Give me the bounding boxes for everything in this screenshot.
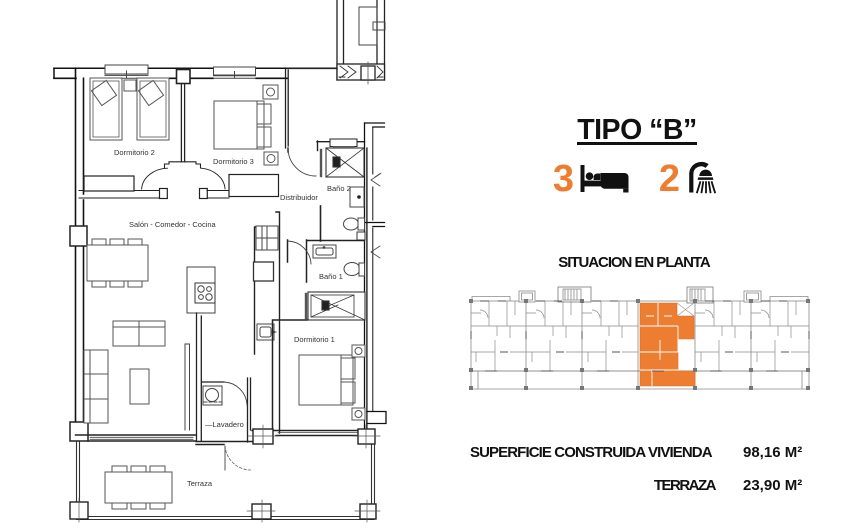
- svg-text:2: 2: [659, 158, 680, 200]
- svg-text:Baño 2: Baño 2: [327, 184, 351, 193]
- svg-text:Distribuidor: Distribuidor: [280, 193, 318, 202]
- svg-text:—Lavadero: —Lavadero: [205, 420, 244, 429]
- svg-text:SUPERFICIE CONSTRUIDA VIVIENDA: SUPERFICIE CONSTRUIDA VIVIENDA: [470, 444, 713, 461]
- svg-text:98,16 M²: 98,16 M²: [743, 444, 802, 461]
- svg-text:Dormitorio 1: Dormitorio 1: [294, 335, 335, 344]
- svg-text:3: 3: [553, 158, 574, 200]
- svg-text:Dormitorio 3: Dormitorio 3: [213, 157, 254, 166]
- svg-text:23,90 M²: 23,90 M²: [743, 477, 802, 494]
- svg-text:Salón - Comedor - Cocina: Salón - Comedor - Cocina: [129, 220, 217, 229]
- svg-text:SITUACION EN PLANTA: SITUACION EN PLANTA: [558, 254, 711, 271]
- svg-text:Baño 1: Baño 1: [319, 272, 343, 281]
- svg-text:TIPO “B”: TIPO “B”: [577, 114, 697, 146]
- svg-text:Dormitorio 2: Dormitorio 2: [114, 148, 155, 157]
- svg-text:Terraza: Terraza: [187, 479, 213, 488]
- svg-text:TERRAZA: TERRAZA: [654, 477, 717, 494]
